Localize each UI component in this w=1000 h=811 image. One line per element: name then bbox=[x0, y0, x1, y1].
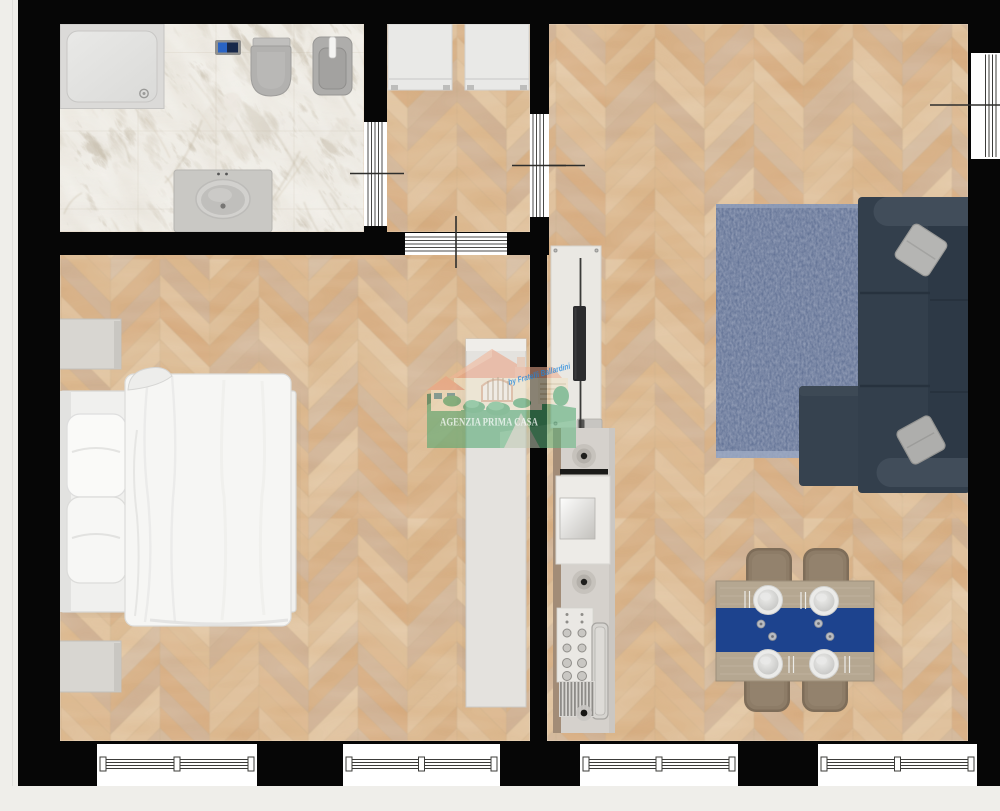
svg-text:AGENZIA PRIMA CASA: AGENZIA PRIMA CASA bbox=[440, 415, 538, 429]
